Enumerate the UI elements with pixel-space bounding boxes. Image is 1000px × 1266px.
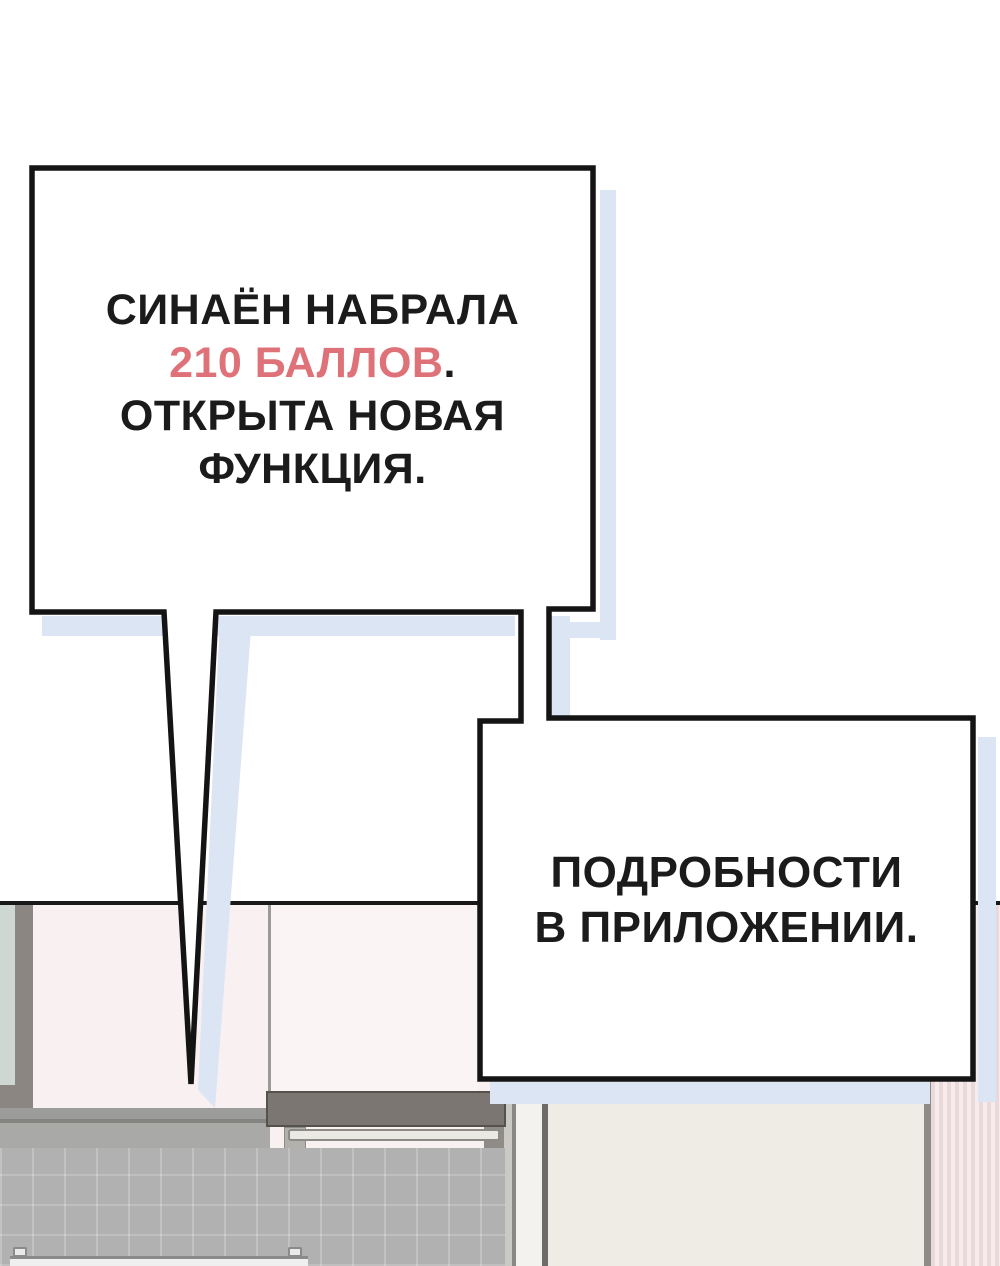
channel-right-shadow	[551, 616, 570, 720]
bubble2-bottom-shadow	[490, 1081, 930, 1104]
bubble2-line2: В ПРИЛОЖЕНИИ.	[535, 900, 919, 955]
bubble1-right-shadow	[600, 190, 616, 640]
bubble1-score-text: 210 БАЛЛОВ	[169, 339, 443, 387]
speech-bubble-1: СИНАЁН НАБРАЛА 210 БАЛЛОВ. ОТКРЫТА НОВАЯ…	[32, 168, 593, 611]
webtoon-panel: СИНАЁН НАБРАЛА 210 БАЛЛОВ. ОТКРЫТА НОВАЯ…	[0, 0, 1000, 1266]
bubble1-line3: ОТКРЫТА НОВАЯ	[120, 390, 505, 443]
speech-bubble-2: ПОДРОБНОСТИ В ПРИЛОЖЕНИИ.	[480, 721, 973, 1079]
bubble1-line1: СИНАЁН НАБРАЛА	[106, 284, 520, 337]
bubble1-bottom-shadow	[42, 616, 515, 636]
bubble1-line4: ФУНКЦИЯ.	[198, 443, 426, 496]
bubble2-right-shadow	[978, 737, 996, 1102]
bubble1-line2: 210 БАЛЛОВ.	[169, 337, 456, 390]
bubble2-line1: ПОДРОБНОСТИ	[551, 845, 903, 900]
bubble1-period: .	[443, 339, 455, 387]
